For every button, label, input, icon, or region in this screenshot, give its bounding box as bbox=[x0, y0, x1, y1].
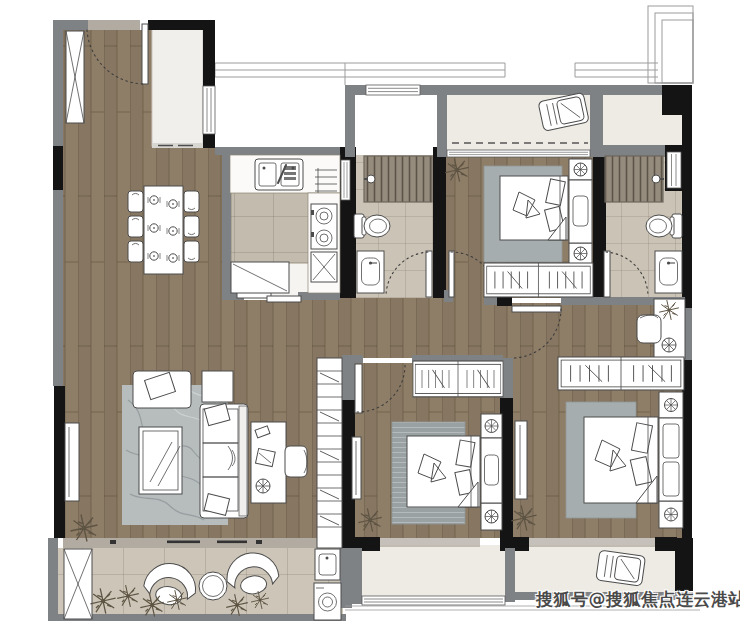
kitchen-fridge bbox=[231, 262, 289, 293]
shower-area bbox=[364, 156, 432, 202]
sofa bbox=[200, 403, 248, 518]
side-table bbox=[202, 371, 233, 402]
nightstand bbox=[569, 159, 592, 180]
shower-area bbox=[605, 156, 664, 202]
balcony-lounge-chair bbox=[596, 550, 646, 586]
wardrobe bbox=[484, 263, 593, 297]
hallway-floor bbox=[318, 298, 512, 358]
kitchen-shaft-window bbox=[341, 160, 350, 200]
master-balcony-floor bbox=[515, 545, 677, 592]
bedroom-south-balcony-floor bbox=[362, 545, 505, 602]
master-balcony bbox=[596, 550, 646, 586]
floorplan-svg bbox=[0, 0, 740, 621]
nightstand bbox=[659, 392, 683, 418]
living-balcony-threshold bbox=[63, 538, 340, 548]
nightstand bbox=[659, 501, 683, 528]
foyer-window bbox=[203, 86, 215, 134]
wardrobe bbox=[413, 361, 503, 397]
vanity-basin bbox=[655, 251, 682, 293]
laundry-sink bbox=[315, 549, 340, 580]
kitchen-sink bbox=[255, 159, 303, 190]
armchair bbox=[133, 371, 191, 408]
desk-chair bbox=[285, 446, 307, 477]
coffee-table bbox=[139, 427, 182, 494]
shoe-cabinet bbox=[66, 31, 84, 123]
bedroom-south-threshold bbox=[380, 538, 480, 547]
entry-mat bbox=[88, 20, 140, 30]
desk-chair bbox=[637, 315, 661, 343]
vanity-basin bbox=[357, 251, 384, 293]
headboard-bench bbox=[481, 438, 502, 503]
bathroom-b-window bbox=[667, 152, 681, 188]
tv bbox=[65, 423, 79, 501]
toilet bbox=[646, 214, 682, 238]
bookshelf bbox=[317, 358, 342, 548]
balcony-table bbox=[199, 572, 227, 600]
stove bbox=[311, 204, 337, 249]
foyer-floor bbox=[152, 28, 203, 146]
wardrobe bbox=[558, 357, 684, 390]
shaft-window bbox=[366, 85, 420, 95]
bed bbox=[500, 176, 568, 240]
tv bbox=[352, 437, 361, 499]
dining-set bbox=[128, 186, 199, 274]
kitchen-tile-floor bbox=[231, 191, 310, 263]
ac-unit bbox=[64, 549, 92, 619]
bedroom-north-balcony-window bbox=[447, 150, 590, 157]
desk bbox=[251, 422, 286, 503]
south-balcony-railing bbox=[362, 596, 505, 605]
master-threshold bbox=[529, 538, 655, 547]
exterior-outline-lines bbox=[215, 6, 693, 85]
tv bbox=[515, 421, 527, 499]
headboard-bench bbox=[659, 418, 683, 501]
bed bbox=[584, 417, 658, 503]
floorplan-canvas: 搜狐号@搜狐焦点连云港站 bbox=[0, 0, 740, 621]
entry-zone bbox=[66, 31, 84, 123]
nightstand bbox=[481, 503, 502, 530]
kitchen-cabinet-lower bbox=[311, 252, 337, 282]
bed bbox=[407, 436, 480, 507]
nightstand bbox=[481, 414, 502, 438]
nightstand bbox=[569, 243, 592, 264]
headboard-bench bbox=[569, 180, 592, 243]
watermark: 搜狐号@搜狐焦点连云港站 bbox=[536, 588, 740, 611]
washing-machine bbox=[314, 583, 341, 620]
toilet bbox=[354, 214, 390, 238]
